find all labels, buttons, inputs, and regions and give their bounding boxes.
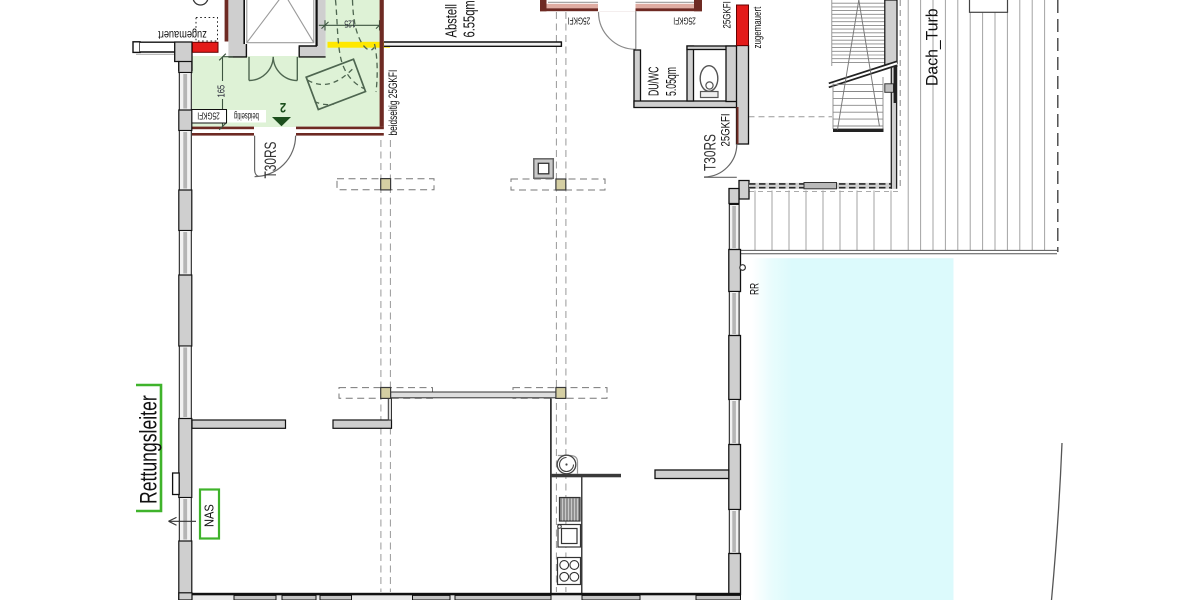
svg-text:beidseitig 25GKFI: beidseitig 25GKFI (388, 70, 401, 136)
svg-text:zugemauert: zugemauert (752, 6, 765, 48)
svg-text:DU/WC: DU/WC (645, 66, 662, 96)
svg-text:beidseitig: beidseitig (234, 111, 259, 122)
svg-text:zugemauert: zugemauert (158, 28, 207, 40)
svg-text:Rettungsleiter: Rettungsleiter (135, 395, 163, 504)
svg-text:25GKFI: 25GKFI (568, 15, 590, 27)
svg-text:2: 2 (280, 100, 286, 115)
svg-text:6.55qm: 6.55qm (461, 0, 478, 37)
svg-text:25GKFI: 25GKFI (721, 1, 734, 28)
svg-text:25GKFI: 25GKFI (720, 113, 733, 146)
svg-text:5.05qm: 5.05qm (663, 67, 680, 96)
svg-text:Dach_Turb: Dach_Turb (923, 8, 942, 86)
svg-text:T30RS: T30RS (262, 142, 280, 179)
svg-text:Abstell: Abstell (443, 4, 460, 37)
svg-text:25GKFI: 25GKFI (197, 110, 219, 122)
svg-text:RR: RR (749, 283, 762, 295)
svg-text:T30RS: T30RS (702, 134, 720, 171)
svg-text:165: 165 (215, 85, 226, 98)
svg-text:25GKFI: 25GKFI (673, 15, 695, 27)
svg-text:NAS: NAS (202, 504, 217, 527)
